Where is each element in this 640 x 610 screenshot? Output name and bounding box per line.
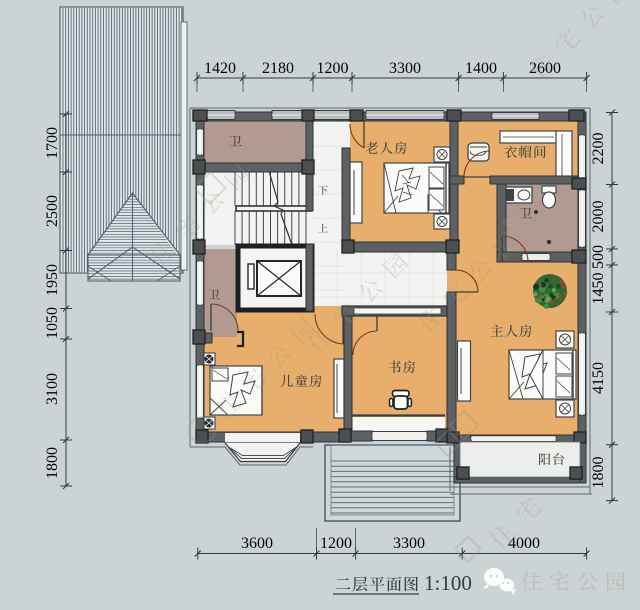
svg-text:1800: 1800 [590, 457, 607, 489]
svg-text:1700: 1700 [44, 127, 61, 159]
svg-text:2180: 2180 [262, 60, 294, 77]
svg-text:4150: 4150 [590, 362, 607, 394]
svg-text:1950: 1950 [44, 264, 61, 296]
svg-text:1:100: 1:100 [424, 571, 472, 595]
svg-text:2200: 2200 [590, 133, 607, 165]
svg-text:4000: 4000 [508, 535, 540, 552]
svg-text:2000: 2000 [590, 201, 607, 233]
svg-text:1200: 1200 [317, 60, 349, 77]
svg-text:2500: 2500 [44, 195, 61, 227]
svg-text:1450: 1450 [590, 273, 607, 305]
svg-text:1200: 1200 [320, 535, 352, 552]
svg-text:500: 500 [590, 245, 607, 269]
svg-text:3300: 3300 [389, 60, 421, 77]
svg-text:1050: 1050 [44, 307, 61, 339]
svg-text:3600: 3600 [241, 535, 273, 552]
svg-text:1400: 1400 [465, 60, 497, 77]
svg-text:3100: 3100 [44, 373, 61, 405]
svg-text:1800: 1800 [44, 447, 61, 479]
svg-text:1420: 1420 [204, 60, 236, 77]
svg-text:3300: 3300 [393, 535, 425, 552]
